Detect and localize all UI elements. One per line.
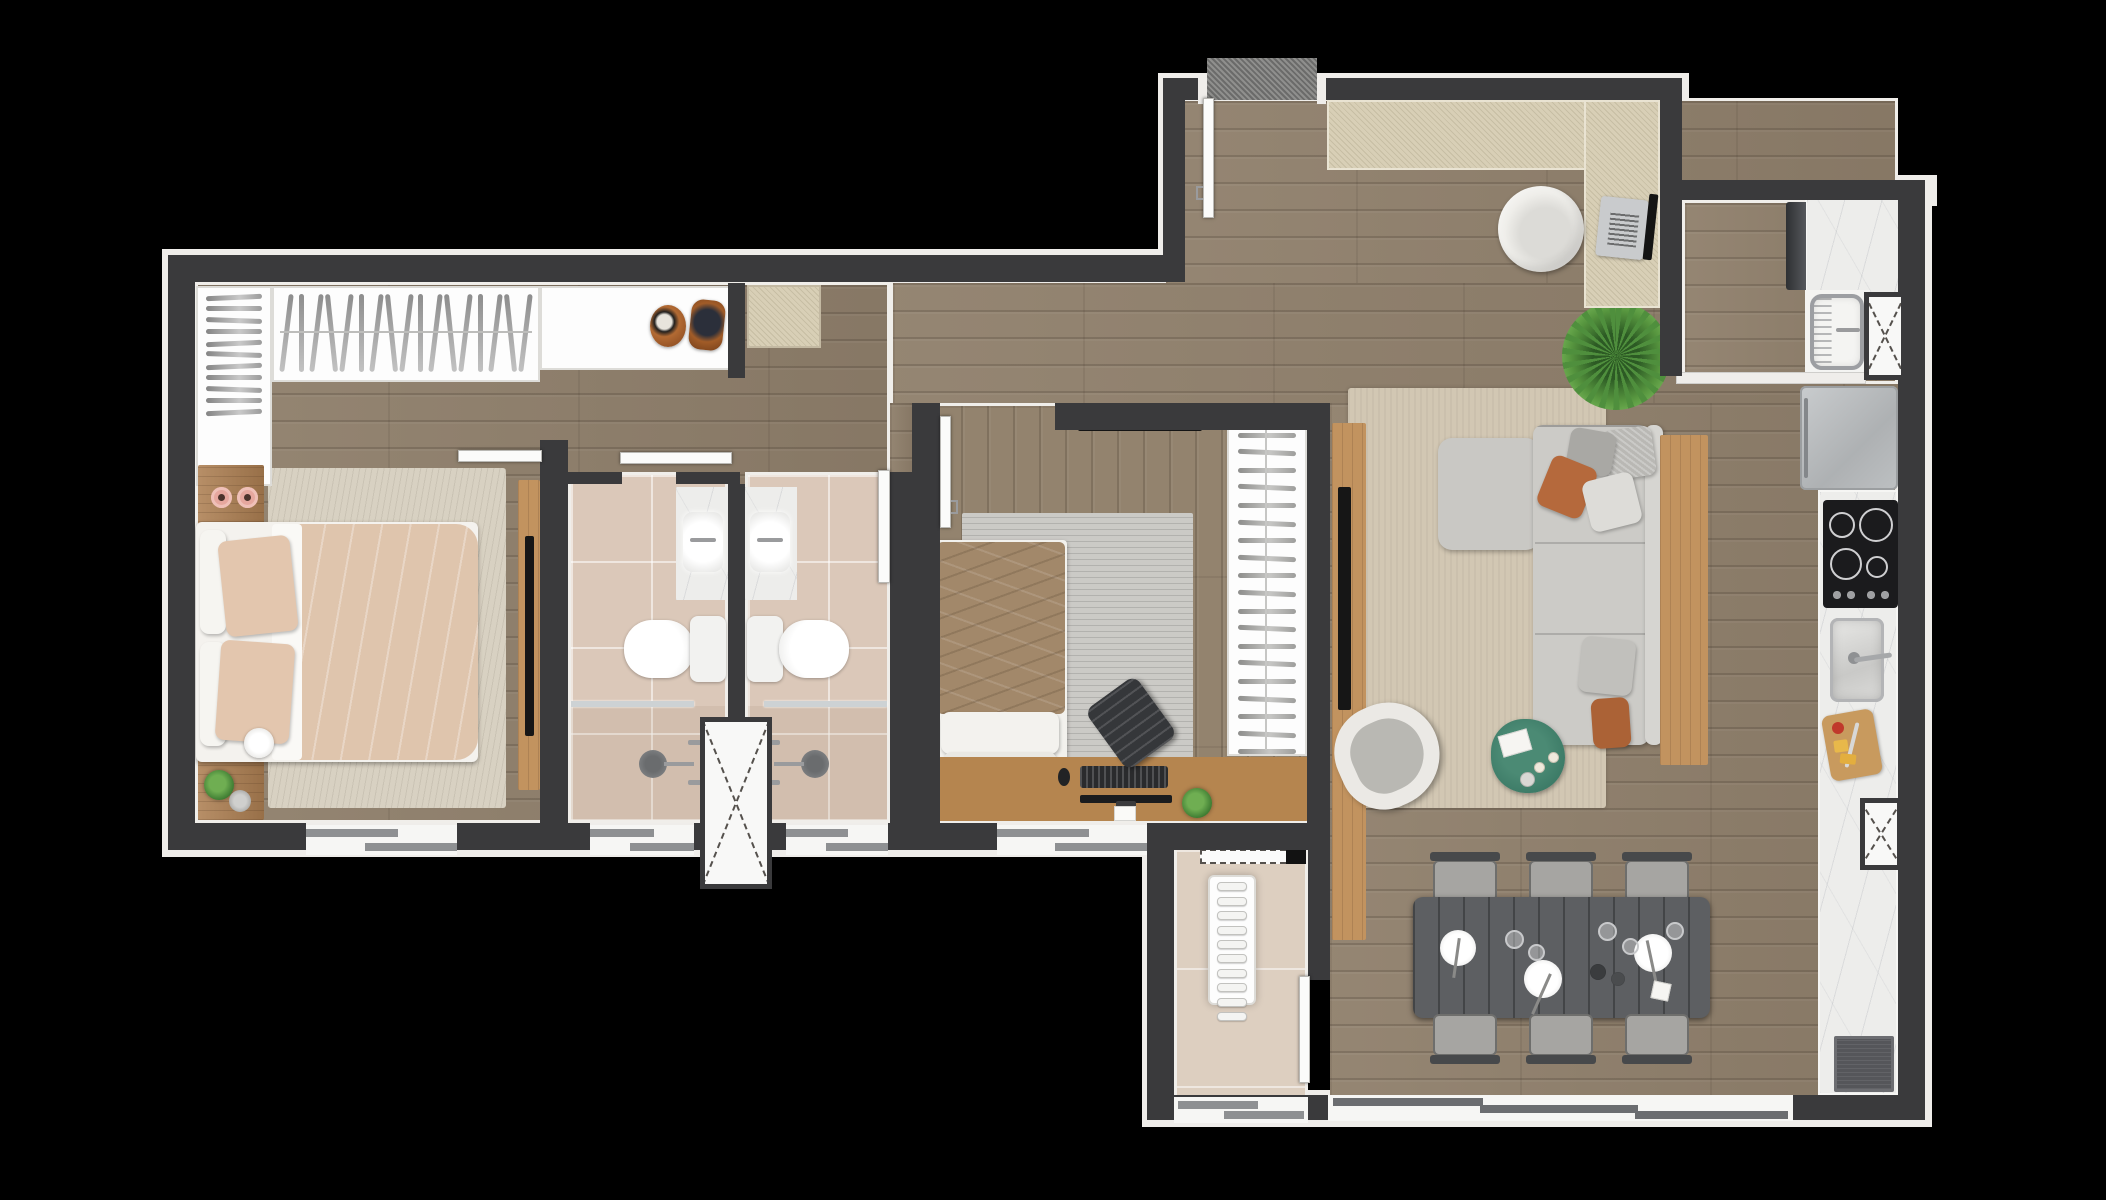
- desk-keyboard: [1080, 766, 1168, 788]
- ventilation-shaft-service: [1864, 292, 1906, 380]
- refrigerator-handles: [1804, 398, 1808, 478]
- window-sash: [365, 843, 457, 851]
- closet-hanging-rail: [272, 286, 540, 382]
- wall-baths-top-a: [568, 472, 622, 484]
- drying-rack: [1208, 875, 1256, 1005]
- sofa-seat-divider-1: [1535, 542, 1647, 544]
- office-chair: [1498, 186, 1584, 272]
- sofa-cushion-terracotta-2: [1590, 697, 1631, 750]
- bag-duffel: [687, 298, 726, 351]
- wall-bedroom2-top: [1055, 403, 1330, 430]
- cutting-board-cheese-2: [1840, 753, 1857, 765]
- bed1-lamp: [244, 728, 274, 758]
- wine-glass-3: [1598, 922, 1617, 941]
- washing-machine: [1786, 202, 1806, 290]
- ventilation-shaft-kitchen: [1860, 798, 1902, 870]
- floor-corridor-sliver: [890, 403, 912, 472]
- bedroom2-door-handle: [951, 500, 958, 514]
- window-sash: [630, 843, 694, 851]
- bath1-faucet: [690, 538, 716, 542]
- closet-rod: [280, 331, 532, 333]
- bedroom2-wardrobe: [1227, 418, 1307, 756]
- candle-1-wick: [218, 494, 225, 501]
- bed1-pillow-beige-1: [217, 534, 299, 637]
- wine-glass-4: [1622, 938, 1639, 955]
- entry-bench-mat: [747, 285, 821, 348]
- wall-bath2-right: [890, 472, 940, 823]
- chair-back: [1526, 1055, 1596, 1064]
- sofa-cushion-gray-3: [1577, 635, 1637, 696]
- entry-jamb-right: [1317, 76, 1326, 104]
- living-tv: [1338, 487, 1351, 710]
- wall-bottom-left-2: [457, 823, 590, 850]
- wall-connector-vertical: [1163, 78, 1185, 282]
- wall-service-top: [1660, 180, 1925, 200]
- window-sash: [590, 829, 654, 837]
- bedroom1-door-leaf: [458, 450, 542, 462]
- laundry-door-leaf: [1299, 976, 1310, 1083]
- chair-back: [1526, 852, 1596, 861]
- window-sash: [786, 829, 848, 837]
- sliding-panel-1: [1333, 1098, 1483, 1106]
- bottle-2: [1611, 972, 1625, 986]
- laundry-sink-faucet: [1836, 328, 1860, 332]
- floor-plan-canvas: [0, 0, 2106, 1200]
- closet-shelf-unit: [196, 286, 272, 486]
- bath1-shower-head: [639, 750, 667, 778]
- sofa-sideboard: [1660, 435, 1708, 765]
- entry-doormat: [1207, 58, 1317, 100]
- bath1-toilet-bowl: [624, 620, 694, 678]
- chair-back: [1622, 1055, 1692, 1064]
- window-sash: [1178, 1101, 1258, 1109]
- desk-paper: [1114, 806, 1136, 821]
- chair-seat: [1529, 860, 1593, 902]
- wine-glass-2: [1528, 944, 1545, 961]
- kitchen-floor-mat: [1834, 1036, 1894, 1092]
- bathroom1-door-leaf: [620, 452, 732, 464]
- window-bathroom2: [786, 825, 888, 855]
- bag-round-leather: [650, 305, 686, 347]
- burner-3: [1830, 548, 1862, 580]
- window-bedroom2: [997, 825, 1147, 855]
- chair-back: [1622, 852, 1692, 861]
- chair-back: [1430, 852, 1500, 861]
- nightstand-tray: [229, 790, 251, 812]
- sofa-seat-divider-2: [1535, 633, 1647, 635]
- wall-office-service-divider: [1660, 98, 1682, 376]
- service-sliding-door-track: [1676, 372, 1866, 384]
- window-sash: [1224, 1111, 1304, 1119]
- window-bedroom1: [306, 825, 457, 855]
- window-sash: [1055, 843, 1147, 851]
- bath2-faucet: [757, 538, 783, 542]
- cutting-board-tomato: [1832, 722, 1844, 734]
- entry-door-leaf: [1203, 98, 1214, 218]
- wall-bottom-bed2-b: [1147, 823, 1330, 850]
- living-palm-plant: [1562, 302, 1670, 410]
- bath2-shower-arm: [774, 762, 804, 766]
- bath2-shower-glass: [764, 701, 887, 707]
- closet-end-wall: [728, 283, 745, 378]
- service-counter: [1805, 200, 1898, 292]
- bathroom2-door-leaf: [878, 470, 890, 583]
- laundry-cabinet-end: [1286, 849, 1306, 864]
- dining-chair-bottom-2: [1529, 1014, 1593, 1064]
- wall-bottom-right-b: [1793, 1095, 1925, 1120]
- napkin: [1650, 980, 1671, 1001]
- coffee-table-tray: [1520, 772, 1535, 787]
- wall-bottom-left-1: [168, 823, 306, 850]
- bath2-sink: [750, 512, 790, 572]
- chair-back: [1430, 1055, 1500, 1064]
- sliding-panel-3: [1635, 1111, 1788, 1119]
- window-bathroom1: [590, 825, 694, 855]
- dining-chair-top-2: [1529, 852, 1593, 902]
- candle-2-wick: [244, 494, 251, 501]
- dining-chair-top-3: [1625, 852, 1689, 902]
- wall-baths-top-b: [676, 472, 740, 484]
- cutting-board-cheese-1: [1833, 739, 1849, 753]
- office-laptop-body: [1595, 196, 1649, 261]
- chair-seat: [1433, 860, 1497, 902]
- bed1-duvet: [296, 524, 478, 760]
- window-sash: [826, 843, 888, 851]
- bedroom2-door-leaf: [940, 416, 951, 528]
- sofa-chaise: [1438, 438, 1540, 550]
- wall-bedroom1-bath: [540, 440, 568, 823]
- chair-seat: [1625, 1014, 1689, 1056]
- bedroom2-wardrobe-rod: [1265, 424, 1267, 750]
- desk-mouse: [1058, 768, 1070, 786]
- bedroom1-tv: [525, 536, 534, 736]
- bath2-toilet-tank: [747, 616, 783, 682]
- window-sash: [306, 829, 398, 837]
- entry-door-handle: [1196, 186, 1203, 200]
- coffee-table-cup-1: [1534, 762, 1545, 773]
- bath1-toilet-tank: [690, 616, 726, 682]
- bath1-sink: [683, 512, 723, 572]
- chair-seat: [1625, 860, 1689, 902]
- burner-4: [1866, 556, 1888, 578]
- window-sash: [997, 829, 1089, 837]
- wall-bottom-bed2-a: [935, 823, 997, 850]
- balcony-sliding-door: [1328, 1095, 1793, 1121]
- dining-chair-top-1: [1433, 852, 1497, 902]
- wine-glass-5: [1666, 922, 1684, 940]
- wine-glass-1: [1505, 930, 1524, 949]
- cooktop-knobs: [1829, 590, 1893, 600]
- bath2-shower-head: [801, 750, 829, 778]
- wall-bedroom2-right: [1307, 403, 1330, 823]
- bottle-1: [1590, 964, 1606, 980]
- wall-top-entry-right: [1317, 78, 1682, 100]
- bed2-pillow-white-1: [941, 712, 1059, 754]
- sliding-panel-2: [1480, 1105, 1638, 1113]
- bath2-toilet-bowl: [779, 620, 849, 678]
- laundry-tank-sink: [1810, 294, 1864, 370]
- bed2-duvet: [937, 542, 1065, 714]
- refrigerator: [1800, 386, 1898, 490]
- chair-seat: [1433, 1014, 1497, 1056]
- bath1-shower-arm: [664, 762, 694, 766]
- wall-laundry-left: [1147, 847, 1174, 1095]
- dining-chair-bottom-1: [1433, 1014, 1497, 1064]
- wall-left: [168, 255, 195, 850]
- wall-baths-center: [728, 484, 745, 719]
- desk-plant: [1182, 788, 1212, 818]
- wall-bedroom2-left-stub: [912, 403, 940, 472]
- bath1-shower-glass: [571, 701, 694, 707]
- ventilation-shaft-bathrooms: [700, 717, 772, 889]
- dining-chair-bottom-3: [1625, 1014, 1689, 1064]
- burner-1: [1829, 512, 1855, 538]
- wall-bottom-left-4: [888, 823, 935, 850]
- coffee-table-cup-2: [1548, 752, 1559, 763]
- chair-seat: [1529, 1014, 1593, 1056]
- window-laundry: [1174, 1097, 1308, 1123]
- burner-2: [1859, 508, 1893, 542]
- wall-laundry-right: [1308, 847, 1330, 980]
- wall-top-left-block: [168, 255, 1185, 282]
